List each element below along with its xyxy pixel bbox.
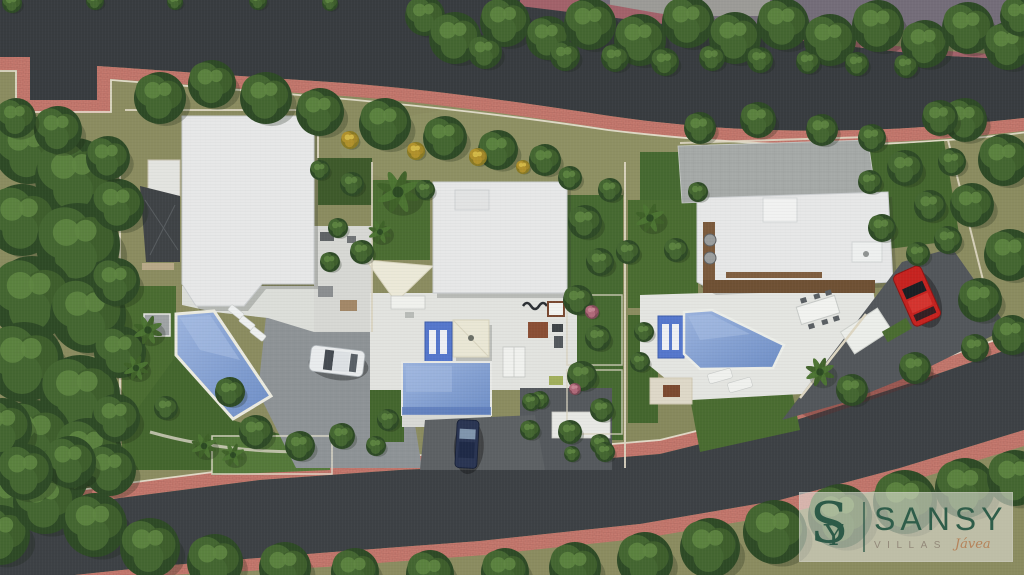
outdoor-furniture [552,324,563,332]
door-mat [549,376,563,385]
wood-deck-horizontal [703,280,875,293]
mosaic-wall-panel [672,324,679,350]
outdoor-rug [528,322,548,338]
canopy-finial [468,335,474,341]
villa-2-roof [433,182,567,293]
wood-deck-strip [726,272,822,278]
brand-name: SANSY [874,503,1000,536]
mosaic-wall-panel [440,330,447,354]
coffee-table [405,312,414,318]
roof-skylight [455,190,489,210]
monogram-y: Y [824,521,843,550]
logo-monogram: S Y [810,497,854,557]
outdoor-furniture [554,336,563,348]
brand-series: VILLAS [874,540,947,551]
site-plan-render: S Y SANSY VILLAS Jávea [0,0,1024,575]
villa-1-atrium-glass [140,186,180,262]
outdoor-sofa [391,296,425,309]
pool-highlight [406,366,452,392]
mosaic-wall-panel [662,324,669,350]
villa-1-roof [182,116,314,306]
brand-watermark: S Y SANSY VILLAS Jávea [799,492,1013,562]
round-table [704,252,716,264]
framed-panel [548,302,564,316]
mosaic-wall-panel [429,330,436,354]
roof-box [763,198,797,222]
outdoor-furniture [318,286,333,297]
pool-tile-band [402,407,491,415]
roof-vent [863,251,869,257]
brand-location: Jávea [955,537,991,552]
round-table [704,234,716,246]
aerial-scene [0,0,1024,575]
outdoor-table [347,236,356,243]
outdoor-rug [340,300,357,311]
brand-subtitle: VILLAS Jávea [874,537,1000,552]
firepit [663,385,680,397]
logo-divider [863,502,865,552]
logo-text: SANSY VILLAS Jávea [874,503,1000,552]
mosaic-pool-wall [658,316,684,358]
planter-bench [142,263,174,270]
